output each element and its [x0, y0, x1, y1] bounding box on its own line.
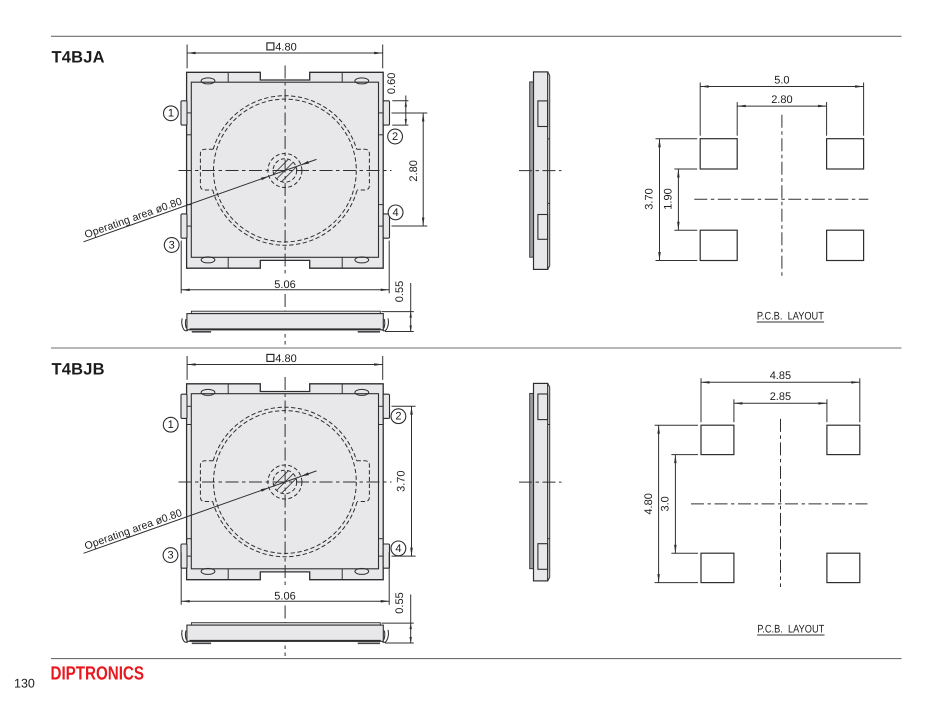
svg-text:3.70: 3.70: [644, 188, 656, 209]
svg-text:4.85: 4.85: [770, 370, 791, 382]
svg-text:1.90: 1.90: [663, 188, 675, 209]
svg-text:2.85: 2.85: [770, 391, 791, 403]
svg-text:0.60: 0.60: [386, 73, 398, 94]
svg-text:T4BJA: T4BJA: [52, 49, 105, 67]
svg-text:4: 4: [393, 207, 399, 219]
svg-text:5.0: 5.0: [774, 74, 789, 86]
svg-text:130: 130: [14, 677, 35, 691]
svg-text:4.80: 4.80: [643, 493, 655, 514]
svg-text:0.55: 0.55: [394, 281, 406, 302]
svg-text:3.0: 3.0: [660, 496, 672, 511]
svg-text:DIPTRONICS: DIPTRONICS: [51, 663, 145, 684]
svg-text:2.80: 2.80: [771, 94, 792, 106]
svg-text:0.55: 0.55: [394, 592, 406, 613]
svg-text:T4BJB: T4BJB: [52, 361, 105, 379]
svg-text:P.C.B. LAYOUT: P.C.B. LAYOUT: [757, 310, 824, 322]
svg-text:4.80: 4.80: [275, 353, 296, 365]
svg-text:1: 1: [168, 419, 174, 431]
svg-text:4: 4: [395, 543, 401, 555]
svg-text:2: 2: [392, 131, 398, 143]
svg-text:P.C.B. LAYOUT: P.C.B. LAYOUT: [757, 623, 824, 635]
svg-text:3.70: 3.70: [395, 470, 407, 491]
svg-text:3: 3: [169, 239, 175, 251]
svg-text:3: 3: [167, 550, 173, 562]
svg-text:4.80: 4.80: [275, 41, 296, 53]
svg-text:Operating area ø0.80: Operating area ø0.80: [83, 507, 184, 553]
svg-text:1: 1: [168, 108, 174, 120]
svg-text:5.06: 5.06: [274, 279, 295, 291]
svg-text:2.80: 2.80: [408, 160, 420, 181]
svg-text:Operating area ø0.80: Operating area ø0.80: [83, 195, 184, 241]
svg-text:5.06: 5.06: [274, 591, 295, 603]
svg-text:2: 2: [395, 411, 401, 423]
